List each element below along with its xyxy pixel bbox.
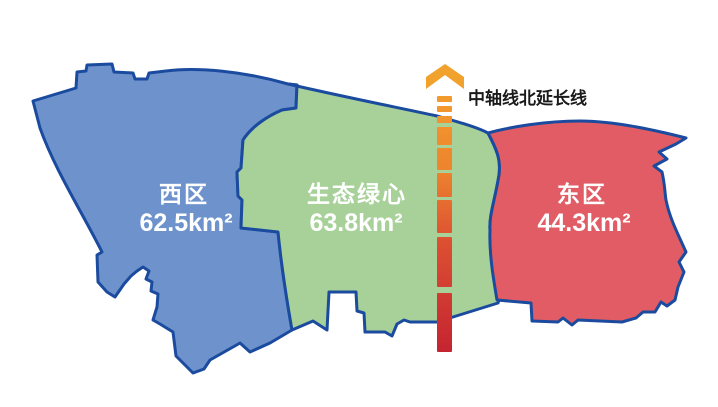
axis-arrow-icon [426,64,464,89]
axis-dash [437,237,452,287]
axis-dash [437,293,452,352]
axis-dash [437,200,452,233]
region-west-label: 西区 [159,181,209,207]
axis-label: 中轴线北延长线 [468,88,587,108]
axis-dash [437,127,452,145]
region-east-label: 东区 [557,181,607,207]
axis-dash [437,116,452,123]
region-west-area: 62.5km² [139,209,232,237]
axis-dash [437,106,452,112]
axis-dash [437,96,452,102]
region-green-heart-label: 生态绿心 [307,181,407,207]
region-east-area: 44.3km² [537,209,630,237]
district-map-canvas: 中轴线北延长线 西区 62.5km² 生态绿心 63.8km² 东区 44.3k… [0,0,718,407]
axis-dash [437,173,452,197]
region-green-heart-area: 63.8km² [309,209,402,237]
district-map: 中轴线北延长线 西区 62.5km² 生态绿心 63.8km² 东区 44.3k… [0,0,718,407]
axis-dash [437,148,452,170]
